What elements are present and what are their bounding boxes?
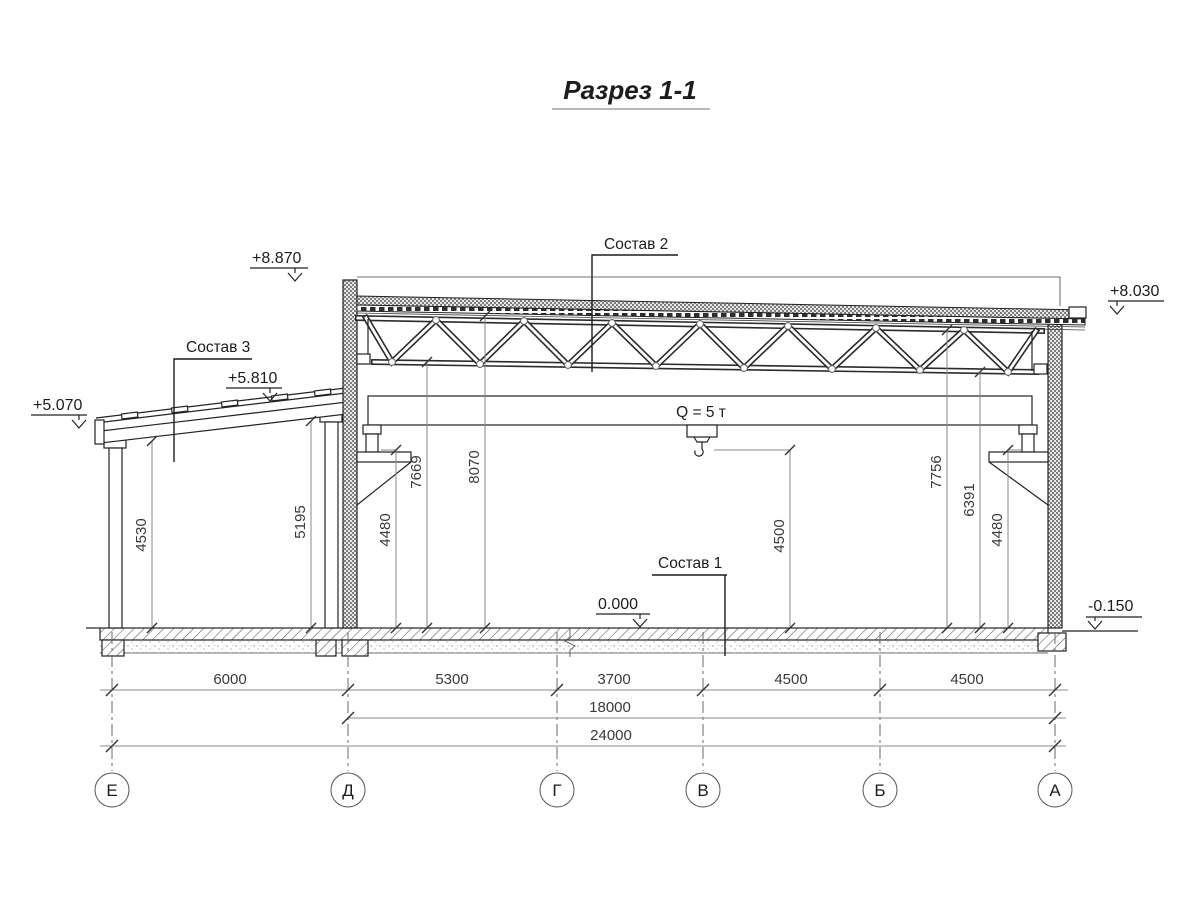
section-drawing: Разрез 1-1: [0, 0, 1200, 900]
axis-label-e: Е: [106, 781, 117, 800]
floor-slab: [86, 628, 1138, 657]
annex-column-right: [325, 422, 338, 628]
axis-bubble-v: В: [686, 773, 720, 807]
elevation-annex-low: +5.070: [31, 397, 87, 428]
annex-bay: [95, 387, 354, 628]
elevation-floor: 0.000: [596, 596, 650, 627]
drawing-title: Разрез 1-1: [563, 75, 696, 105]
axis-label-d: Д: [342, 781, 354, 800]
elevation-roof-right: +8.030: [1108, 283, 1164, 314]
elevation-annex-high-value: +5.810: [228, 370, 277, 387]
annex-roof-edge: [95, 420, 104, 444]
foundation-block-mid-1: [316, 640, 336, 656]
corbel-left: [357, 452, 411, 505]
axis-label-b: Б: [874, 781, 885, 800]
corbel-right: [989, 452, 1048, 505]
elevation-arrow-icon: [72, 420, 86, 428]
elevation-ground: -0.150: [1086, 598, 1142, 629]
dim-crane-span: 18000: [589, 699, 631, 716]
dim-annex-right: 5195: [292, 505, 309, 538]
drawing-sheet: Разрез 1-1: [0, 0, 1200, 900]
title-block: Разрез 1-1: [552, 75, 710, 109]
main-building: Q = 5 т: [343, 280, 1086, 628]
axis-bubble-e: Е: [95, 773, 129, 807]
dim-truss-bottom-right: 6391: [961, 483, 978, 516]
dim-span-g-v: 3700: [597, 671, 630, 688]
dim-roof-under-right: 7756: [928, 455, 945, 488]
dim-span-v-b: 4500: [774, 671, 807, 688]
dim-span-b-a: 4500: [950, 671, 983, 688]
dim-span-d-g: 5300: [435, 671, 468, 688]
dim-truss-bottom-left: 7669: [408, 455, 425, 488]
axis-bubble-g: Г: [540, 773, 574, 807]
axis-label-g: Г: [552, 781, 561, 800]
roof-truss: [357, 317, 1047, 376]
label-sostav-3: Состав 3: [186, 339, 250, 356]
elevation-parapet-value: +8.870: [252, 250, 301, 267]
crane-hook-icon: [695, 442, 703, 456]
dim-hook-height: 4500: [771, 519, 788, 552]
axis-bubble-b: Б: [863, 773, 897, 807]
axis-label-v: В: [697, 781, 708, 800]
label-sostav-2: Состав 2: [604, 236, 668, 253]
foundation-block-mid-2: [342, 640, 368, 656]
elevation-roof-right-value: +8.030: [1110, 283, 1159, 300]
elevation-arrow-icon: [1110, 306, 1124, 314]
roof-edge-right: [1069, 307, 1086, 318]
axis-bubbles: Е Д Г В Б А: [95, 773, 1072, 807]
axis-label-a: А: [1049, 781, 1061, 800]
foundation-block-left: [102, 640, 124, 656]
dim-total-width: 24000: [590, 727, 632, 744]
dim-annex-left: 4530: [133, 518, 150, 551]
foundation-block-right: [1038, 633, 1066, 651]
elevation-parapet: +8.870: [250, 250, 308, 281]
hoist-trolley: [687, 425, 717, 456]
wall-left: [343, 280, 357, 628]
horizontal-dimensions: 6000 5300 3700 4500 4500 18000 24000: [100, 671, 1068, 752]
wall-right: [1048, 320, 1062, 628]
elevation-floor-value: 0.000: [598, 596, 638, 613]
elevation-annex-high: +5.810: [226, 370, 282, 401]
elevation-arrow-icon: [633, 619, 647, 627]
crane-capacity-label: Q = 5 т: [676, 404, 726, 421]
dim-rail-left: 4480: [377, 513, 394, 546]
elevation-annex-low-value: +5.070: [33, 397, 82, 414]
label-sostav-1: Состав 1: [658, 555, 722, 572]
elevation-ground-value: -0.150: [1088, 598, 1133, 615]
axis-bubble-a: А: [1038, 773, 1072, 807]
dim-span-e-d: 6000: [213, 671, 246, 688]
annex-column-left: [109, 448, 122, 628]
dim-roof-under-left: 8070: [466, 450, 483, 483]
elevation-arrow-icon: [1088, 621, 1102, 629]
elevation-arrow-icon: [288, 273, 302, 281]
axis-bubble-d: Д: [331, 773, 365, 807]
dim-rail-right: 4480: [989, 513, 1006, 546]
